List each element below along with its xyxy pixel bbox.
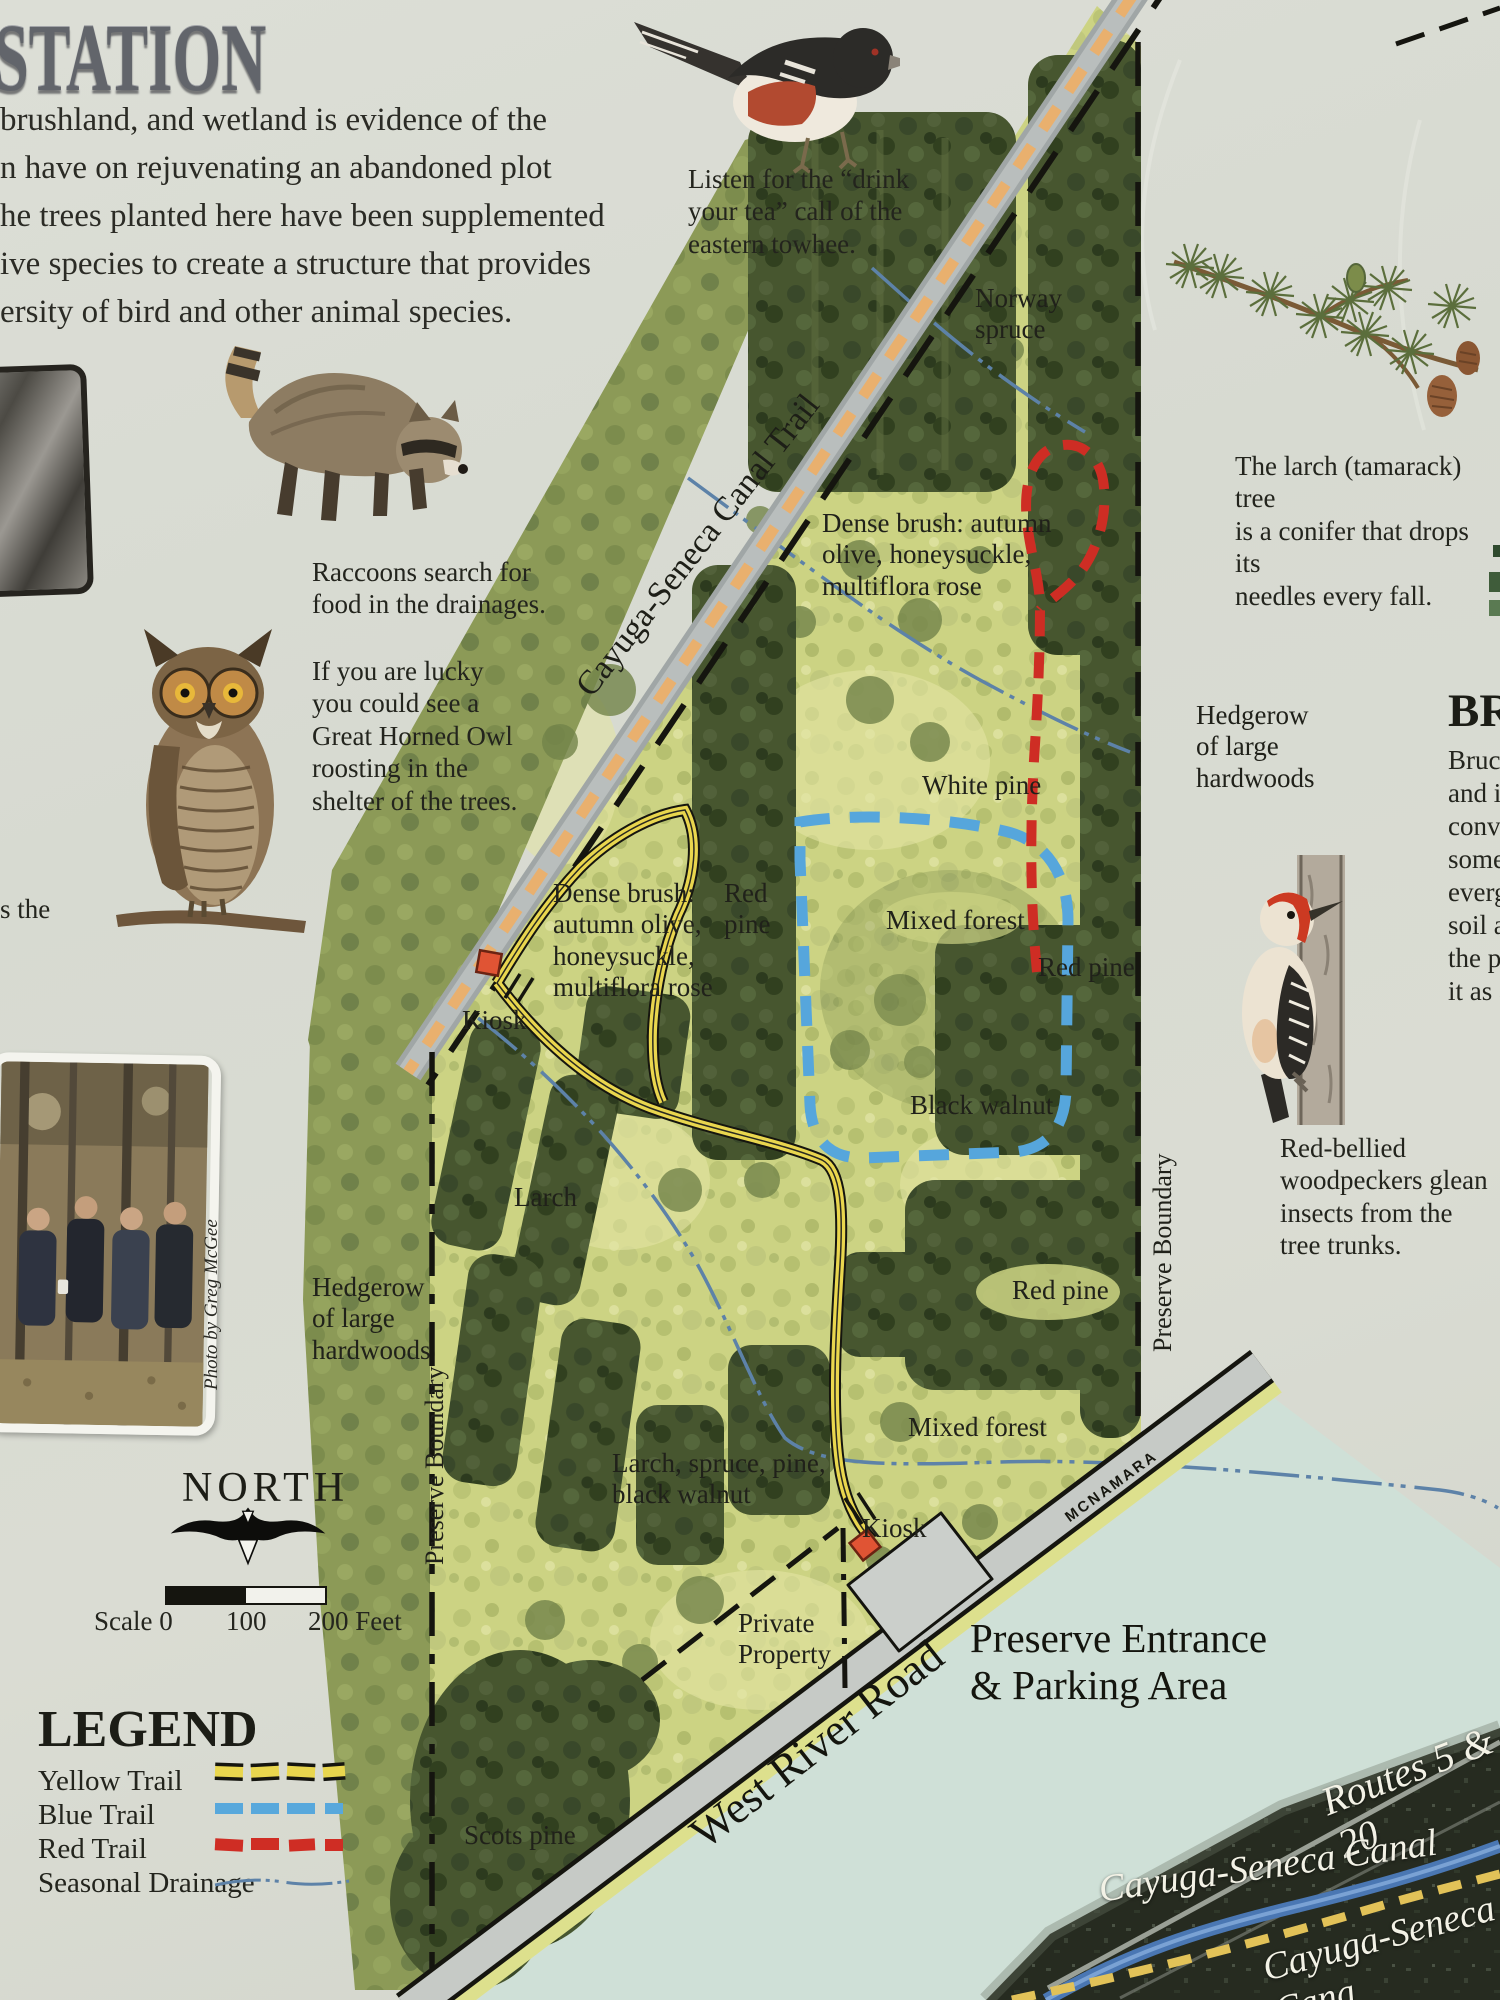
towhee-illustration — [620, 0, 900, 175]
north-eagle-icon — [168, 1505, 328, 1567]
owl-caption: If you are lucky you could see a Great H… — [312, 655, 517, 817]
north-label: NORTH — [182, 1464, 349, 1512]
map-label-dense-brush-lower: Dense brush: autumn olive, honeysuckle, … — [553, 878, 713, 1003]
larch-caption: The larch (tamarack) tree is a conifer t… — [1235, 450, 1500, 612]
scalebar-black-segment — [165, 1586, 248, 1605]
towhee-caption: Listen for the “drink your tea” call of … — [688, 163, 909, 260]
map-label-norway-spruce: Norway spruce — [975, 283, 1062, 346]
map-label-red-pine-lower: Red pine — [1012, 1275, 1109, 1306]
map-label-dense-brush-upper: Dense brush: autumn olive, honeysuckle, … — [822, 508, 1051, 602]
raccoon-caption: Raccoons search for food in the drainage… — [312, 556, 546, 621]
scale-label-200: 200 Feet — [308, 1606, 402, 1637]
scale-label-100: 100 — [226, 1606, 267, 1637]
map-label-kiosk-upper: Kiosk — [462, 1005, 527, 1036]
map-label-preserve-boundary-right: Preserve Boundary — [1148, 1153, 1178, 1352]
bw-photo — [0, 364, 94, 598]
kiosk-marker-upper — [476, 950, 501, 975]
larch-branch-illustration — [1160, 228, 1490, 448]
scalebar-white-segment — [244, 1586, 327, 1605]
photo-credit: Photo by Greg McGee — [201, 1219, 223, 1390]
map-label-black-walnut: Black walnut — [910, 1090, 1053, 1121]
map-label-larch: Larch — [514, 1182, 577, 1213]
map-label-mixed-forest-lower: Mixed forest — [908, 1412, 1047, 1443]
legend-swatch-blue — [213, 1799, 347, 1817]
raccoon-illustration — [205, 322, 470, 547]
scale-label-zero: Scale 0 — [94, 1606, 173, 1637]
map-label-kiosk-lower: Kiosk — [862, 1513, 927, 1544]
group-photo-image — [0, 1061, 212, 1427]
woodpecker-caption: Red-bellied woodpeckers glean insects fr… — [1280, 1132, 1488, 1262]
map-label-hedgerow-left: Hedgerow of large hardwoods — [312, 1272, 430, 1366]
legend-label-yellow-trail: Yellow Trail — [38, 1765, 183, 1798]
map-label-red-pine-right: Red pine — [1038, 952, 1135, 983]
map-label-preserve-boundary-left: Preserve Boundary — [420, 1366, 450, 1565]
map-label-white-pine: White pine — [922, 770, 1041, 801]
cutoff-text-fragment: s the — [0, 893, 50, 925]
map-label-larch-spruce-pine: Larch, spruce, pine, black walnut — [612, 1448, 826, 1511]
legend-swatch-drainage — [213, 1872, 351, 1892]
right-article-heading: BR — [1448, 684, 1500, 738]
legend-swatch-yellow — [213, 1760, 347, 1784]
legend-label-blue-trail: Blue Trail — [38, 1799, 155, 1832]
map-label-mixed-forest-upper: Mixed forest — [886, 905, 1025, 936]
map-label-red-pine-center: Red pine — [724, 878, 771, 941]
map-label-hedgerow-right: Hedgerow of large hardwoods — [1196, 700, 1314, 794]
map-label-scots-pine: Scots pine — [464, 1820, 576, 1851]
legend-label-red-trail: Red Trail — [38, 1833, 147, 1866]
right-article-body: Bruce and in conve some evergr soil ar t… — [1448, 744, 1500, 1008]
owl-illustration — [110, 615, 310, 945]
map-label-private-property: Private Property — [738, 1608, 831, 1671]
woodpecker-illustration — [1205, 855, 1370, 1125]
group-photo — [0, 1052, 221, 1436]
intro-paragraph: brushland, and wetland is evidence of th… — [0, 96, 605, 336]
map-label-preserve-entrance: Preserve Entrance & Parking Area — [970, 1615, 1267, 1709]
legend-title: LEGEND — [38, 1700, 258, 1759]
legend-swatch-red — [213, 1834, 347, 1854]
interpretive-sign: Photo by Greg McGee — [0, 0, 1500, 2000]
